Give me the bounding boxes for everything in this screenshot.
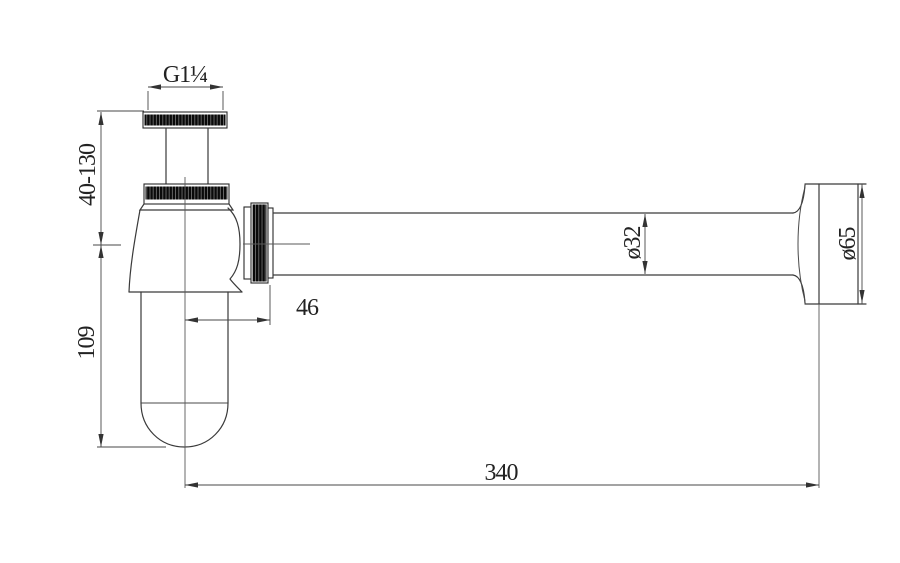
body-height-label: 109 xyxy=(74,326,100,360)
outlet-washer-right xyxy=(268,208,273,278)
flange-bell-top xyxy=(793,185,805,213)
dim-body-height: 109 xyxy=(74,245,166,447)
arrow-down xyxy=(98,232,103,245)
trap-body xyxy=(129,208,242,292)
arrow-up xyxy=(642,214,647,227)
pipe-diameter-label: ø32 xyxy=(620,227,646,260)
flange-diameter-label: ø65 xyxy=(835,227,861,261)
arrow-left xyxy=(185,317,198,322)
overall-length-label: 340 xyxy=(485,460,519,486)
arrow-up xyxy=(98,245,103,258)
flange-bell-bottom xyxy=(793,275,805,303)
arrow-right xyxy=(210,84,223,89)
arrow-left xyxy=(148,84,161,89)
lock-nut-skirt xyxy=(140,204,233,210)
lock-nut xyxy=(140,184,233,210)
dim-overall-length: 340 xyxy=(185,460,819,488)
dim-inlet-height-range: 40-130 xyxy=(75,111,144,245)
outlet-pipe xyxy=(273,213,793,275)
arrow-up xyxy=(98,112,103,125)
outlet-nut xyxy=(244,203,273,283)
trap-body-left-edge xyxy=(129,210,140,292)
dim-thread-size: G1¼ xyxy=(148,62,223,110)
centerlines xyxy=(185,177,819,488)
inlet-nut-knurl xyxy=(145,115,226,126)
dim-pipe-diameter: ø32 xyxy=(620,214,648,274)
arrow-left xyxy=(185,482,198,487)
inlet-height-range-label: 40-130 xyxy=(75,143,101,206)
thread-size-label: G1¼ xyxy=(163,62,207,88)
outlet-offset-label: 46 xyxy=(296,295,319,321)
cup-rounded-bottom xyxy=(141,403,228,447)
inlet-nut xyxy=(143,112,227,128)
dim-flange-diameter: ø65 xyxy=(835,184,865,304)
arrow-down xyxy=(859,290,864,303)
arrow-down xyxy=(98,434,103,447)
flange-bell-silhouette xyxy=(798,187,805,301)
bottle-trap-drawing: G1¼ 40-130 109 46 ø32 ø65 xyxy=(0,0,900,563)
trap-body-outlet-boss xyxy=(228,208,242,292)
inlet-tube xyxy=(166,128,208,184)
lock-nut-knurl xyxy=(146,187,228,200)
trap-cup xyxy=(141,292,228,447)
arrow-right xyxy=(806,482,819,487)
dim-outlet-offset: 46 xyxy=(185,285,319,325)
arrow-right xyxy=(257,317,270,322)
arrow-up xyxy=(859,185,864,198)
outlet-nut-knurl xyxy=(253,205,267,282)
arrow-down xyxy=(642,261,647,274)
technical-drawing-canvas: G1¼ 40-130 109 46 ø32 ø65 xyxy=(0,0,900,563)
